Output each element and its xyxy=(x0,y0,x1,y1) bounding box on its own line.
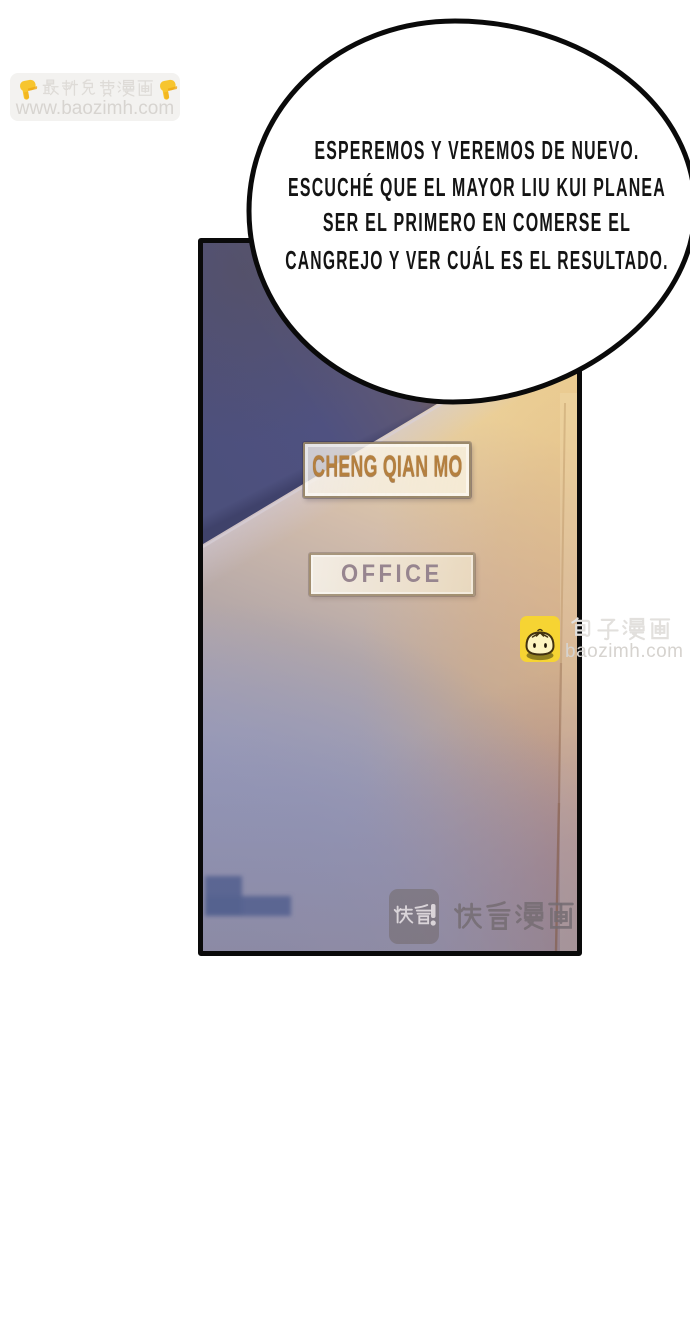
svg-text:baozimh.com: baozimh.com xyxy=(565,641,684,662)
svg-text:www.baozimh.com: www.baozimh.com xyxy=(15,98,174,119)
